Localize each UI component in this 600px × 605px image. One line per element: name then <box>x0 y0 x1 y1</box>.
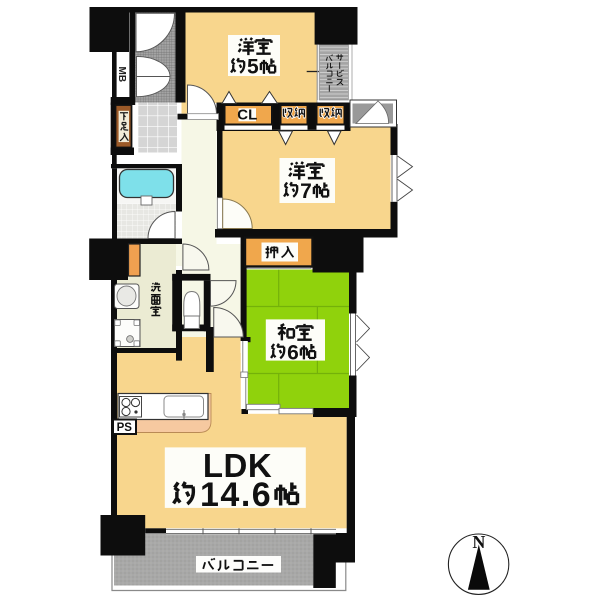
svg-text:CL: CL <box>237 107 257 124</box>
svg-text:MB: MB <box>116 67 127 83</box>
svg-text:7: 7 <box>300 180 312 203</box>
svg-text:5: 5 <box>247 56 259 79</box>
svg-text:14.6: 14.6 <box>200 476 272 514</box>
svg-text:6: 6 <box>287 341 299 364</box>
svg-text:PS: PS <box>117 422 133 434</box>
svg-text:N: N <box>472 532 485 552</box>
